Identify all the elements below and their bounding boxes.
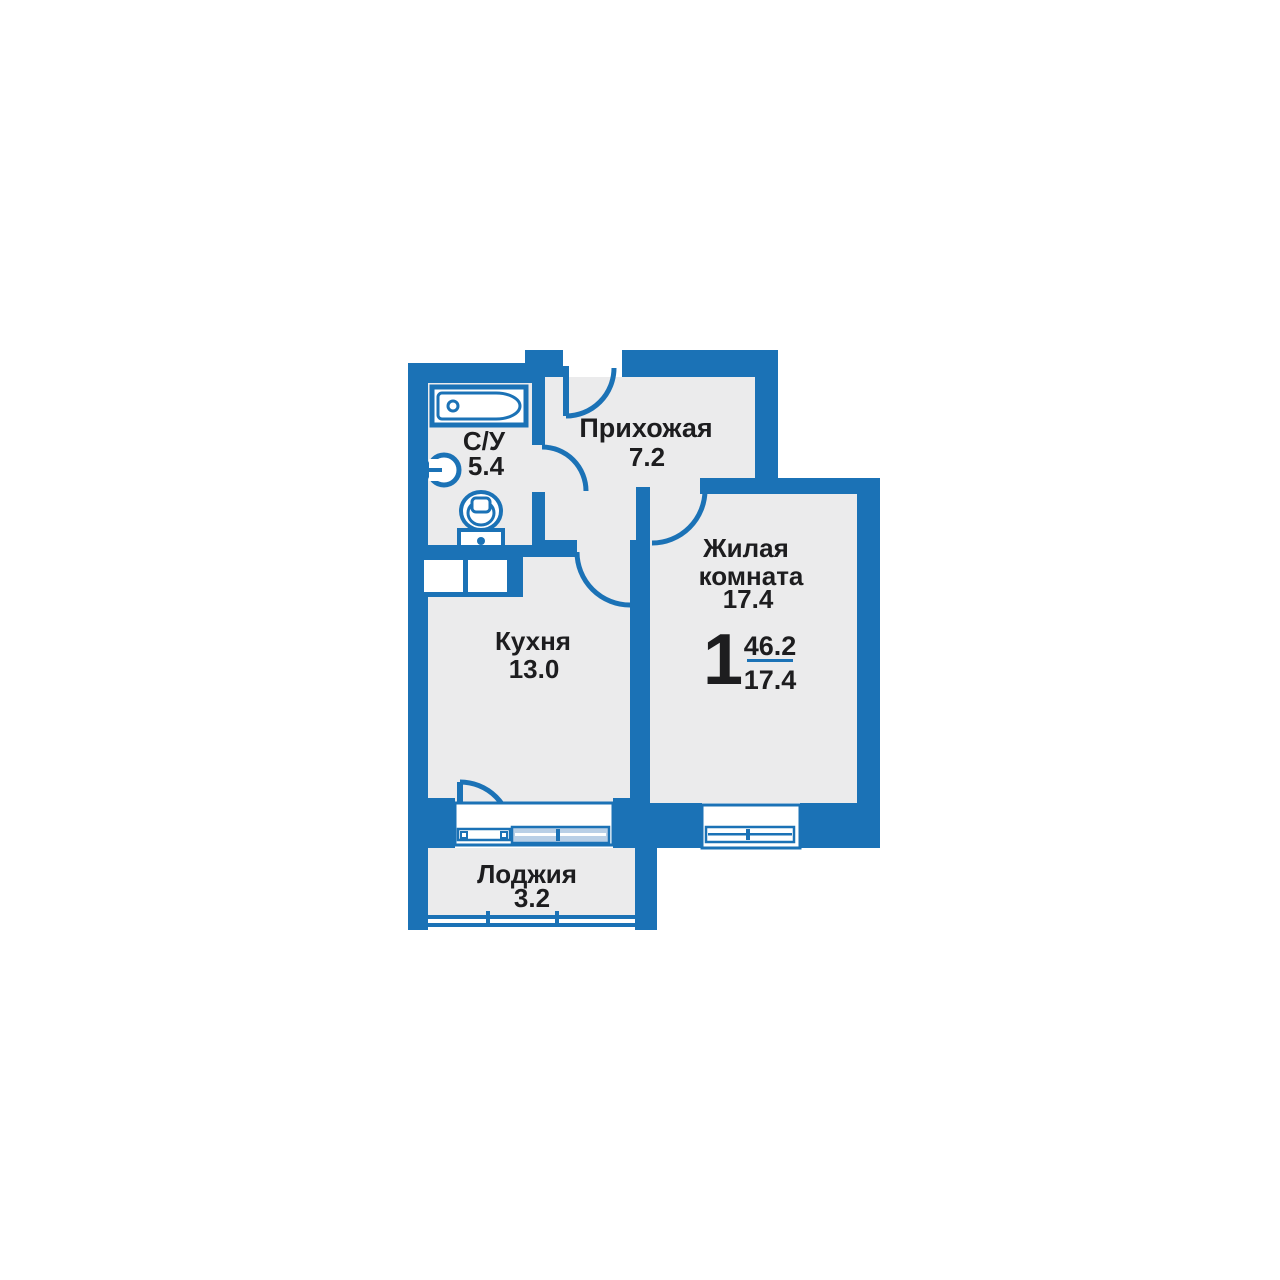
loggia-glazing-tick	[486, 911, 490, 927]
wall-kitchen-living	[630, 540, 650, 803]
vent-shaft-cell	[424, 560, 463, 592]
total-area-figure: 46.2	[744, 631, 797, 661]
doorway-living	[650, 478, 705, 493]
rooms-count-figure: 1	[703, 620, 743, 700]
wall-bathroom-top	[408, 363, 545, 383]
label-hallway-area: 7.2	[629, 442, 665, 472]
threshold-cap	[501, 832, 507, 838]
label-loggia-area: 3.2	[514, 883, 550, 913]
living-window	[702, 805, 800, 848]
wall-living-right	[857, 478, 880, 848]
living-area-figure: 17.4	[744, 665, 797, 695]
kitchen-window-tick	[556, 829, 560, 841]
wall-bathroom-right-upper	[532, 363, 545, 445]
toilet-flush	[472, 498, 490, 512]
threshold-cap	[461, 832, 467, 838]
entrance-door-leaf-icon	[563, 366, 569, 416]
living-window-tick	[746, 829, 750, 840]
label-living-name-line1: Жилая	[702, 533, 789, 563]
kitchen-opening	[455, 803, 613, 845]
wall-living-top	[700, 478, 880, 494]
wall-hall-kitchen	[545, 540, 577, 557]
wall-living-bottom-right	[800, 803, 880, 848]
label-kitchen-area: 13.0	[509, 654, 560, 684]
label-bathroom-area: 5.4	[468, 451, 505, 481]
doorway-bathroom	[532, 445, 545, 492]
bathtub-drain	[448, 401, 458, 411]
loggia-glazing-tick	[555, 911, 559, 927]
loggia-glazing-line	[413, 923, 652, 927]
kitchen-window-midline	[515, 833, 606, 836]
wall-loggia-right	[635, 803, 657, 930]
loggia-glazing-line	[413, 915, 652, 919]
wall-hall-living	[636, 487, 650, 540]
wall-kitchen-bottom-left	[408, 798, 455, 848]
doorway-kitchen	[577, 540, 630, 557]
sink-tap-icon	[426, 468, 442, 472]
floorplan-drawing: С/У 5.4 Прихожая 7.2 Жилая комната 17.4 …	[0, 0, 1280, 1280]
wall-hall-top-right	[622, 350, 778, 377]
floorplan-page: С/У 5.4 Прихожая 7.2 Жилая комната 17.4 …	[0, 0, 1280, 1280]
label-hallway-name: Прихожая	[579, 413, 712, 443]
label-living-area: 17.4	[723, 584, 774, 614]
vent-shaft-cell	[468, 560, 507, 592]
label-kitchen-name: Кухня	[495, 626, 571, 656]
wall-hall-right	[755, 350, 778, 478]
toilet-button	[477, 537, 485, 545]
